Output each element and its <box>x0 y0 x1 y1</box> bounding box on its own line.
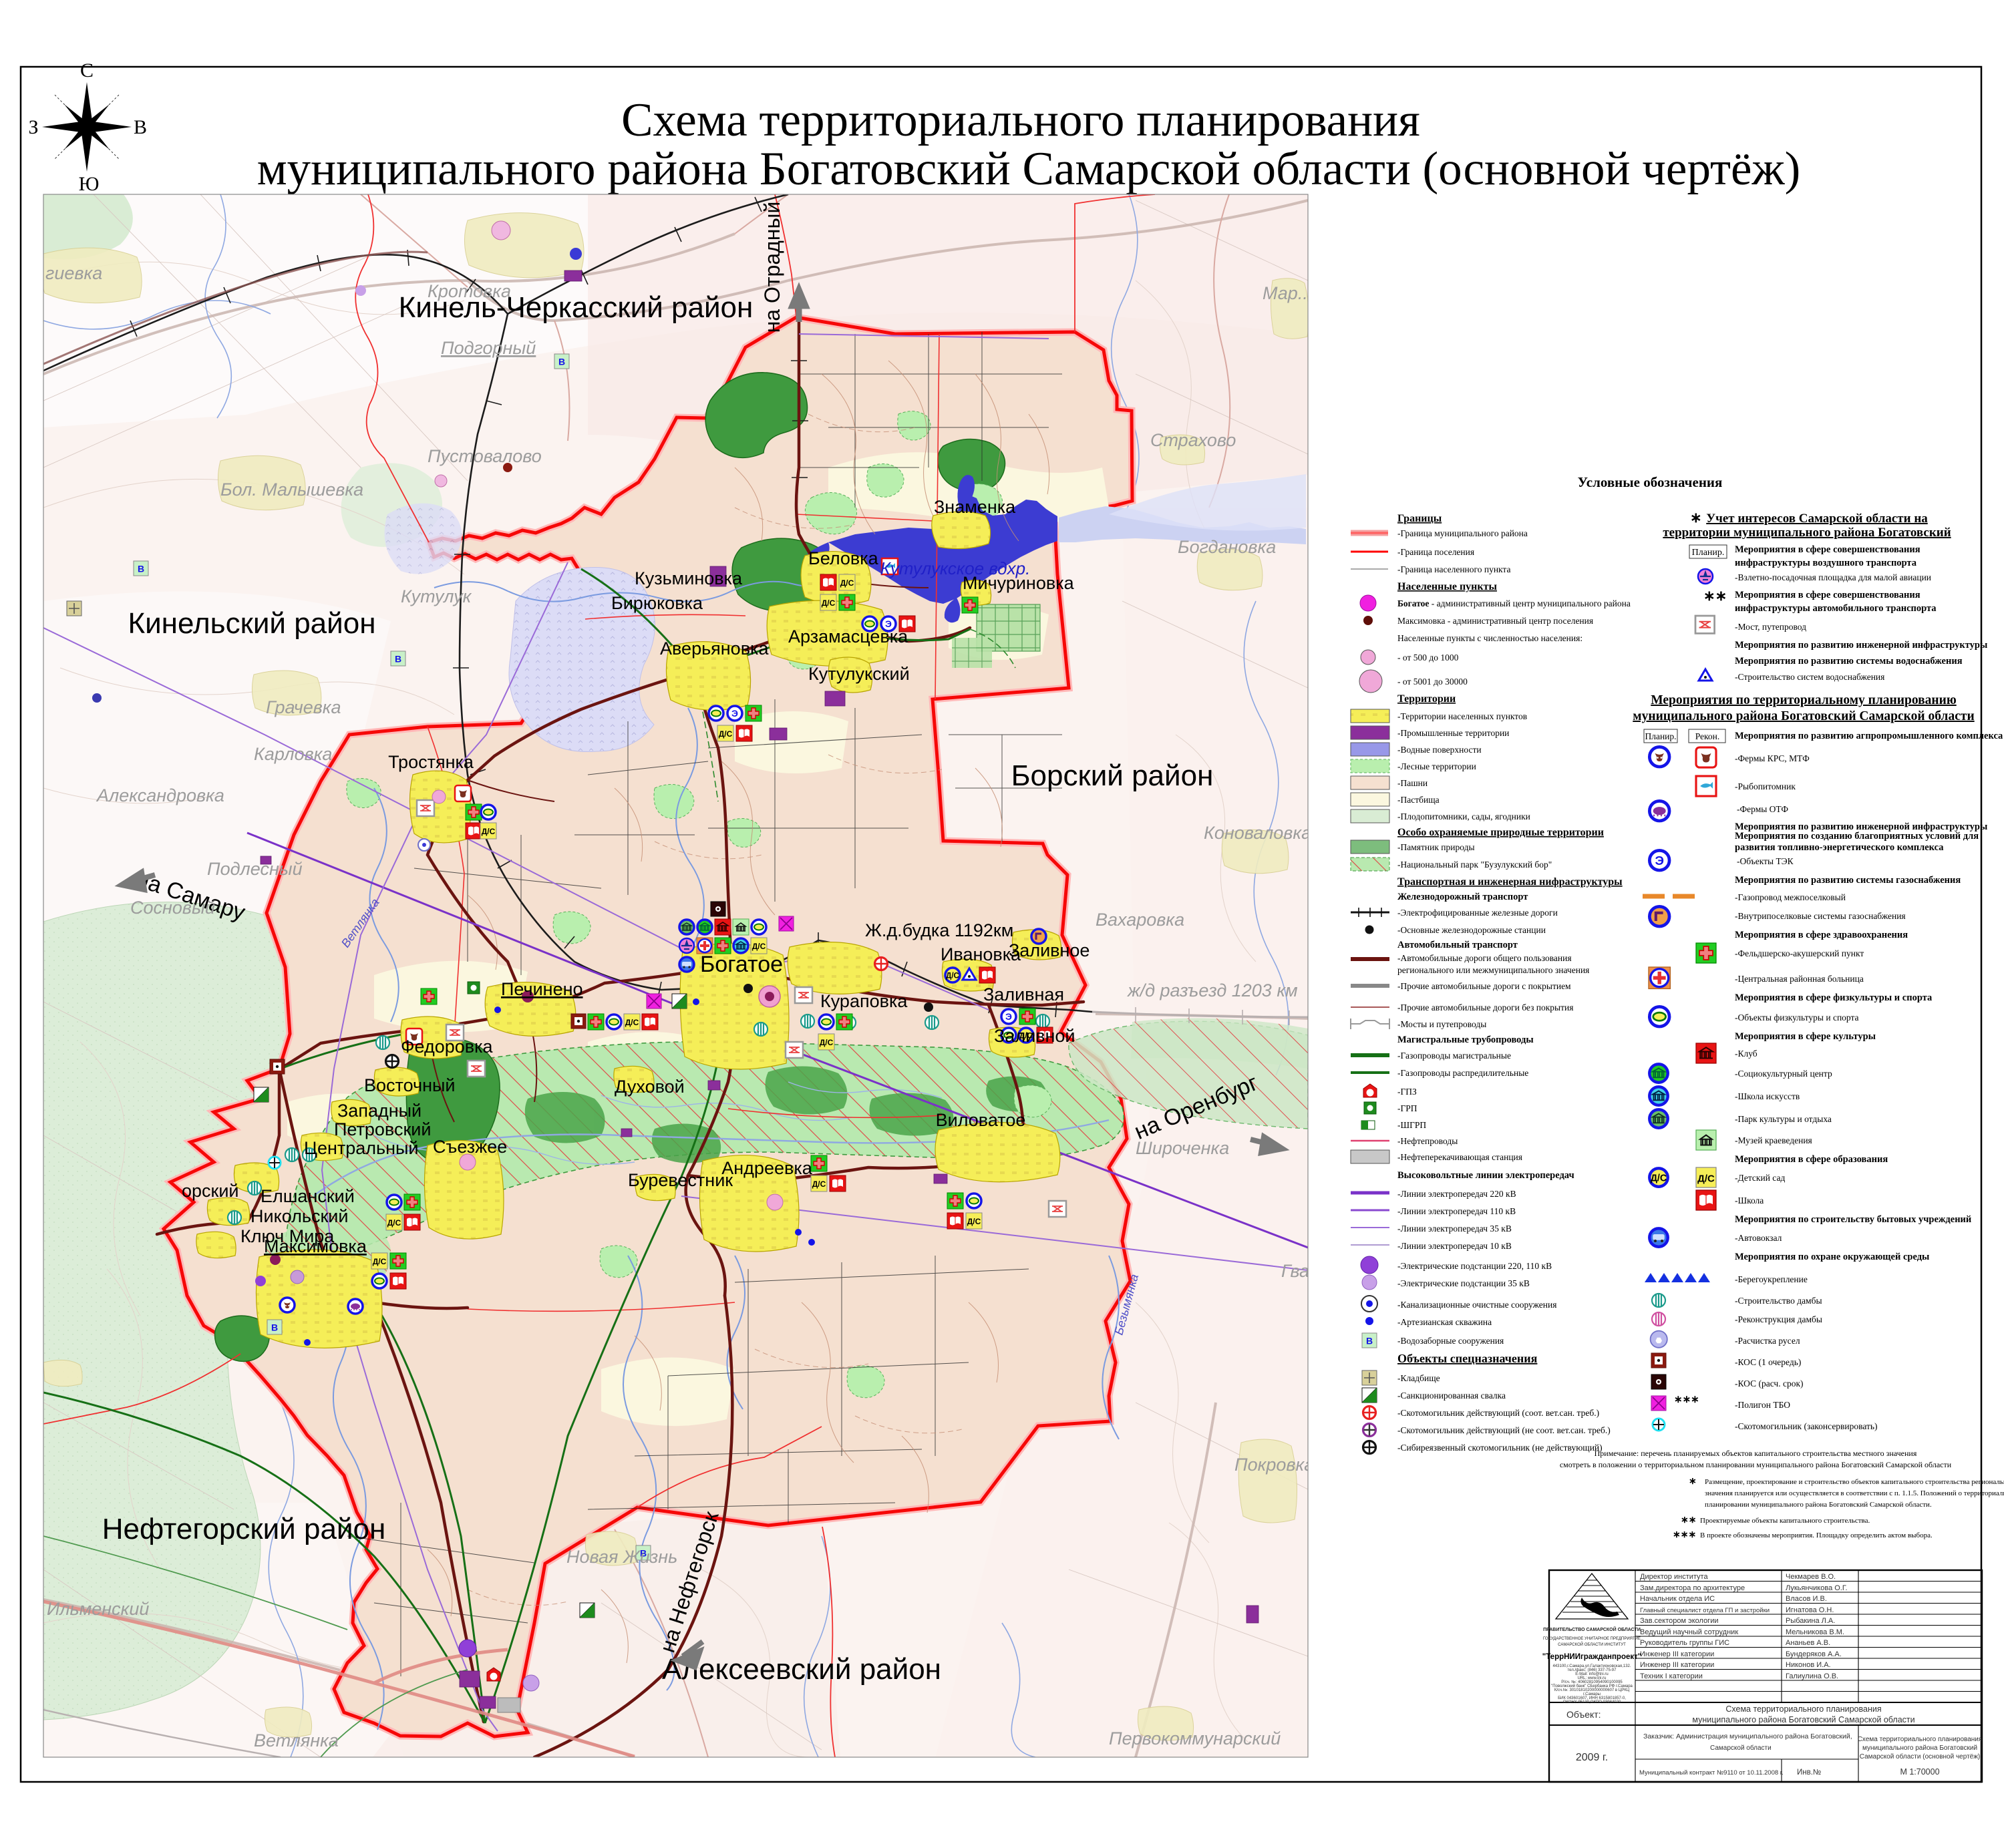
svg-text:Территории: Территории <box>1397 693 1456 705</box>
svg-text:-Нефтеперекачивающая станция: -Нефтеперекачивающая станция <box>1397 1152 1522 1162</box>
svg-text:Ведущий научный сотрудник: Ведущий научный сотрудник <box>1640 1628 1738 1636</box>
svg-text:З: З <box>28 116 38 138</box>
svg-text:Богдановка: Богдановка <box>1178 537 1276 557</box>
svg-text:Мероприятия по развитию инжене: Мероприятия по развитию инженерной инфра… <box>1735 640 1987 651</box>
svg-text:-Сибиреязвенный скотомогильник: -Сибиреязвенный скотомогильник (не дейст… <box>1397 1443 1603 1453</box>
svg-text:-Пастбища: -Пастбища <box>1397 795 1440 805</box>
svg-text:САМАРСКОЙ ОБЛАСТИ ИНСТИТУТ: САМАРСКОЙ ОБЛАСТИ ИНСТИТУТ <box>1558 1642 1626 1647</box>
svg-text:Мероприятия в сфере культуры: Мероприятия в сфере культуры <box>1735 1031 1876 1042</box>
svg-text:Мероприятия в сфере здравоохра: Мероприятия в сфере здравоохранения <box>1735 930 1908 940</box>
svg-text:ж/д разъезд 1203 км: ж/д разъезд 1203 км <box>1127 980 1298 1000</box>
svg-text:Ю: Ю <box>79 173 100 195</box>
svg-text:Планир.: Планир. <box>1692 548 1725 558</box>
svg-text:Елшанский: Елшанский <box>261 1186 355 1206</box>
svg-text:ОКОНХ 95130,ОКПО 03984020: ОКОНХ 95130,ОКПО 03984020 <box>1563 1700 1621 1704</box>
svg-text:значения планируется или осуще: значения планируется или осуществляется … <box>1705 1489 2004 1497</box>
svg-text:-Нефтепроводы: -Нефтепроводы <box>1397 1136 1458 1146</box>
svg-text:-ГПЗ: -ГПЗ <box>1397 1087 1417 1097</box>
svg-text:Самарской области (основной че: Самарской области (основной чертёж) <box>1860 1752 1981 1761</box>
svg-text:Заказчик: Администрация муници: Заказчик: Администрация муниципального р… <box>1643 1732 1852 1740</box>
svg-text:Мероприятия по созданию благоп: Мероприятия по созданию благоприятных ус… <box>1735 831 1979 842</box>
svg-text:Бундеряков А.А.: Бундеряков А.А. <box>1786 1650 1842 1658</box>
svg-text:Руководитель группы ГИС: Руководитель группы ГИС <box>1640 1639 1729 1647</box>
svg-text:Арзамасцевка: Арзамасцевка <box>788 626 908 646</box>
svg-text:∗∗: ∗∗ <box>1703 588 1727 604</box>
svg-text:Подлесный: Подлесный <box>207 859 303 879</box>
svg-text:-Детский сад: -Детский сад <box>1735 1173 1785 1183</box>
svg-text:∗∗∗: ∗∗∗ <box>1673 1530 1696 1540</box>
svg-text:С: С <box>80 59 94 81</box>
svg-text:-Электрические подстанции 35 к: -Электрические подстанции 35 кВ <box>1397 1278 1530 1288</box>
svg-text:Инженер III категории: Инженер III категории <box>1640 1661 1714 1669</box>
svg-text:Примечание: перечень планируем: Примечание: перечень планируемых объекто… <box>1595 1449 1917 1458</box>
svg-text:Лукьянчикова О.Г.: Лукьянчикова О.Г. <box>1786 1584 1848 1592</box>
svg-text:-Газопровод межпоселковый: -Газопровод межпоселковый <box>1735 892 1846 902</box>
svg-text:-Строительство систем водоснаб: -Строительство систем водоснабжения <box>1735 672 1884 682</box>
svg-text:Мероприятия в сфере физкультур: Мероприятия в сфере физкультуры и спорта <box>1735 992 1933 1003</box>
svg-text:2009 г.: 2009 г. <box>1576 1752 1608 1763</box>
svg-text:Инв.№: Инв.№ <box>1797 1769 1821 1777</box>
svg-text:-Газопроводы магистральные: -Газопроводы магистральные <box>1397 1051 1511 1061</box>
svg-text:- от 5001 до 30000: - от 5001 до 30000 <box>1397 677 1468 687</box>
svg-text:-Реконструкция дамбы: -Реконструкция дамбы <box>1735 1314 1822 1324</box>
svg-text:Карловка: Карловка <box>254 744 332 764</box>
svg-text:Восточный: Восточный <box>364 1075 455 1095</box>
svg-text:-Рыбопитомник: -Рыбопитомник <box>1735 781 1796 791</box>
svg-text:Проектируемые объекты капиталь: Проектируемые объекты капитального строи… <box>1700 1517 1870 1525</box>
svg-text:-Полигон ТБО: -Полигон ТБО <box>1735 1400 1790 1410</box>
svg-text:инфраструктуры автомобильного: инфраструктуры автомобильного транспорта <box>1735 603 1937 614</box>
svg-text:-КОС (расч. срок): -КОС (расч. срок) <box>1735 1378 1804 1389</box>
svg-text:Объекты спецназначения: Объекты спецназначения <box>1397 1352 1538 1365</box>
svg-text:Игнатова О.Н.: Игнатова О.Н. <box>1786 1606 1834 1614</box>
svg-text:-Автомобильные дороги общего п: -Автомобильные дороги общего пользования <box>1397 953 1572 963</box>
svg-text:смотреть в положении о террито: смотреть в положении о территориальном п… <box>1560 1460 1952 1469</box>
svg-text:-Берегоукрепление: -Берегоукрепление <box>1735 1274 1808 1284</box>
svg-text:Бирюковка: Бирюковка <box>611 593 703 613</box>
svg-text:Ж.д.будка 1192км: Ж.д.будка 1192км <box>865 920 1013 940</box>
svg-text:Ильменский: Ильменский <box>47 1599 149 1619</box>
svg-text:Съезжее: Съезжее <box>433 1137 507 1157</box>
svg-text:Знаменка: Знаменка <box>934 497 1016 517</box>
svg-text:Железнодорожный транспорт: Железнодорожный транспорт <box>1397 892 1528 902</box>
svg-text:-Объекты физкультуры и спорта: -Объекты физкультуры и спорта <box>1735 1012 1859 1023</box>
svg-text:Кузьминовка: Кузьминовка <box>635 568 743 588</box>
svg-text:Кинельский район: Кинельский район <box>128 607 375 640</box>
svg-text:Зав.сектором экологии: Зав.сектором экологии <box>1640 1617 1719 1625</box>
svg-text:-Санкционированная свалка: -Санкционированная свалка <box>1397 1391 1506 1401</box>
svg-text:-Музей краеведения: -Музей краеведения <box>1735 1135 1812 1145</box>
svg-text:Новая Жизнь: Новая Жизнь <box>566 1547 677 1567</box>
svg-text:-ШГРП: -ШГРП <box>1397 1120 1426 1130</box>
svg-text:Мероприятия по развитию систем: Мероприятия по развитию системы газоснаб… <box>1735 875 1961 886</box>
svg-text:В проекте обозначены мероприят: В проекте обозначены мероприятия. Площад… <box>1700 1531 1933 1539</box>
svg-text:∗: ∗ <box>1690 510 1702 526</box>
svg-text:Виловатое: Виловатое <box>936 1110 1026 1130</box>
svg-text:-Электрофицированные железные: -Электрофицированные железные дороги <box>1397 908 1558 918</box>
svg-text:Транспортная и инженерная нифр: Транспортная и инженерная нифраструктуры <box>1397 876 1623 888</box>
svg-text:Богатое - административный: Богатое - административный центр муницип… <box>1397 598 1631 608</box>
svg-text:Населенные пункты с численност: Населенные пункты с численностью населен… <box>1397 633 1582 643</box>
svg-text:Рекон.: Рекон. <box>1695 731 1720 741</box>
svg-text:муниципального района Богатовс: муниципального района Богатовский Самарс… <box>257 143 1801 195</box>
svg-text:"ТеррНИИгражданпроект": "ТеррНИИгражданпроект" <box>1542 1653 1641 1661</box>
svg-text:-Граница муниципального района: -Граница муниципального района <box>1397 528 1528 538</box>
svg-text:Борский район: Борский район <box>1011 759 1214 792</box>
svg-text:Максимовка - административн: Максимовка - административный центр посе… <box>1397 616 1593 626</box>
svg-text:Схема территориального планиро: Схема территориального планирования <box>621 94 1420 146</box>
svg-text:Вахаровка: Вахаровка <box>1096 910 1184 930</box>
svg-text:Бол. Малышевка: Бол. Малышевка <box>220 480 363 500</box>
svg-text:-Граница поселения: -Граница поселения <box>1397 547 1474 557</box>
svg-text:Мероприятия по развитию агпроп: Мероприятия по развитию агпропромышленно… <box>1735 731 2003 741</box>
svg-text:Населенные пункты: Населенные пункты <box>1397 581 1497 592</box>
svg-text:Чекмарев В.О.: Чекмарев В.О. <box>1786 1573 1836 1581</box>
svg-text:-Водные поверхности: -Водные поверхности <box>1397 745 1482 755</box>
svg-text:Нефтегорский район: Нефтегорский район <box>102 1513 386 1545</box>
svg-text:Печинено: Печинено <box>501 979 583 999</box>
svg-text:Условные обозначения: Условные обозначения <box>1578 474 1723 490</box>
svg-text:Первокоммунарский: Первокоммунарский <box>1109 1728 1281 1748</box>
svg-text:Инженер III категории: Инженер III категории <box>1640 1650 1714 1658</box>
svg-text:Федоровка: Федоровка <box>401 1037 494 1057</box>
svg-text:-Автовокзал: -Автовокзал <box>1735 1233 1782 1243</box>
svg-text:-Граница населенного пункта: -Граница населенного пункта <box>1397 564 1511 574</box>
svg-text:-Памятник природы: -Памятник природы <box>1397 842 1475 852</box>
svg-text:-Электрические подстанции 220: -Электрические подстанции 220, 110 кВ <box>1397 1261 1552 1271</box>
svg-text:на Отрадный: на Отрадный <box>760 202 784 333</box>
svg-text:-Линии электропередач 110 кВ: -Линии электропередач 110 кВ <box>1397 1206 1516 1216</box>
svg-text:-Линии электропередач 35 кВ: -Линии электропередач 35 кВ <box>1397 1224 1512 1234</box>
svg-text:Заливная: Заливная <box>983 984 1064 1004</box>
svg-text:Рыбакина Л.А.: Рыбакина Л.А. <box>1786 1617 1835 1625</box>
svg-text:Андреевка: Андреевка <box>721 1158 812 1178</box>
svg-text:-Парк культуры и отдыха: -Парк культуры и отдыха <box>1735 1114 1832 1124</box>
svg-text:-Артезианская скважина: -Артезианская скважина <box>1397 1317 1492 1327</box>
svg-text:Мельникова В.М.: Мельникова В.М. <box>1786 1628 1844 1636</box>
svg-text:В: В <box>134 116 147 138</box>
svg-text:Ветлянка: Ветлянка <box>254 1730 339 1750</box>
svg-text:муниципального района Богатовс: муниципального района Богатовский Самарс… <box>1692 1715 1914 1724</box>
svg-text:К/сч.№: 30101810200000000607 в: К/сч.№: 30101810200000000607 в ЦРКЦ <box>1554 1688 1630 1692</box>
svg-text:"Поволжский банк" СБербанка РФ: "Поволжский банк" СБербанка РФ г.Самара <box>1551 1684 1633 1688</box>
svg-text:Грачевка: Грачевка <box>266 697 341 717</box>
svg-text:ГОСУДАРСТВЕННОЕ УНИТАРНОЕ ПРЕД: ГОСУДАРСТВЕННОЕ УНИТАРНОЕ ПРЕДПРИЯТИЕ <box>1543 1637 1641 1641</box>
svg-text:-Скотомогильник (законсервиров: -Скотомогильник (законсервировать) <box>1735 1421 1878 1431</box>
svg-text:-Скотомогильник действующий (н: -Скотомогильник действующий (не соот. ве… <box>1397 1425 1611 1435</box>
svg-text:Мероприятия по развитию систем: Мероприятия по развитию системы водоснаб… <box>1735 656 1963 667</box>
svg-text:-Объекты ТЭК: -Объекты ТЭК <box>1737 856 1794 866</box>
svg-text:Буревестник: Буревестник <box>628 1170 733 1190</box>
svg-text:∗: ∗ <box>1689 1477 1697 1487</box>
svg-text:-Линии электропередач 10 кВ: -Линии электропередач 10 кВ <box>1397 1241 1512 1251</box>
svg-text:Западный: Западный <box>337 1101 422 1121</box>
svg-text:-Школа искусств: -Школа искусств <box>1735 1091 1800 1101</box>
svg-text:Галиулина О.В.: Галиулина О.В. <box>1786 1672 1838 1680</box>
svg-text:Коноваловка: Коноваловка <box>1204 823 1311 843</box>
svg-text:Мероприятия по охране окружающ: Мероприятия по охране окружающей среды <box>1735 1252 1929 1262</box>
svg-text:-Основные железнодорожные стан: -Основные железнодорожные станции <box>1397 925 1546 935</box>
svg-text:-Линии электропередач 220 кВ: -Линии электропередач 220 кВ <box>1397 1189 1516 1199</box>
svg-text:-КОС (1 очередь): -КОС (1 очередь) <box>1735 1357 1801 1367</box>
svg-text:Кураповка: Кураповка <box>820 991 908 1011</box>
svg-text:Границы: Границы <box>1397 513 1442 524</box>
svg-text:-Лесные территории: -Лесные территории <box>1397 761 1476 771</box>
svg-text:Мероприятия в сфере образовани: Мероприятия в сфере образования <box>1735 1154 1888 1165</box>
svg-text:Беловка: Беловка <box>808 548 879 568</box>
svg-text:∗∗: ∗∗ <box>1681 1515 1696 1525</box>
svg-text:-Прочие автомобильные дороги б: -Прочие автомобильные дороги без покрыти… <box>1397 1002 1573 1012</box>
svg-text:Александровка: Александровка <box>96 785 224 805</box>
svg-text:гиевка: гиевка <box>45 263 102 283</box>
svg-text:ПРАВИТЕЛЬСТВО САМАРСКОЙ ОБЛАСТ: ПРАВИТЕЛЬСТВО САМАРСКОЙ ОБЛАСТИ <box>1543 1626 1641 1632</box>
svg-text:Тростянка: Тростянка <box>388 752 474 772</box>
svg-text:Муниципальный контракт №9110 о: Муниципальный контракт №9110 от 10.11.20… <box>1639 1769 1784 1777</box>
svg-text:Автомобильный транспорт: Автомобильный транспорт <box>1397 940 1518 950</box>
svg-text:муниципального района Богатовс: муниципального района Богатовский <box>1862 1744 1977 1752</box>
svg-text:Главный специалист отдела ГП и: Главный специалист отдела ГП и застройки <box>1640 1607 1770 1614</box>
svg-text:-Клуб: -Клуб <box>1735 1049 1758 1059</box>
svg-text:Широченка: Широченка <box>1136 1138 1229 1158</box>
svg-text:Заливное: Заливное <box>1009 940 1090 960</box>
svg-text:-Прочие автомобильные дороги с: -Прочие автомобильные дороги с покрытием <box>1397 981 1571 991</box>
svg-text:муниципального района Богатовс: муниципального района Богатовский Самарс… <box>1633 709 1974 723</box>
svg-text:Кутулукское вдхр.: Кутулукское вдхр. <box>880 558 1031 578</box>
svg-text:Подгорный: Подгорный <box>441 338 536 358</box>
svg-text:-Социокультурный центр: -Социокультурный центр <box>1735 1069 1832 1079</box>
svg-text:-Внутрипоселковые системы газо: -Внутрипоселковые системы газоснабжения <box>1735 911 1906 921</box>
svg-text:Мероприятия по территориальном: Мероприятия по территориальному планиров… <box>1651 693 1957 707</box>
svg-text:Алексеевский район: Алексеевский район <box>662 1653 941 1686</box>
svg-text:Директор института: Директор института <box>1640 1573 1708 1581</box>
svg-text:-Пашни: -Пашни <box>1397 778 1428 788</box>
svg-text:регионального или межмуниципал: регионального или межмуниципального знач… <box>1397 965 1589 975</box>
svg-text:Ананьев А.В.: Ананьев А.В. <box>1786 1639 1830 1647</box>
svg-text:-Территории населенных пунктов: -Территории населенных пунктов <box>1397 711 1527 721</box>
svg-text:Мероприятия по строительству б: Мероприятия по строительству бытовых учр… <box>1735 1214 1971 1225</box>
svg-text:- от 500 до 1000: - от 500 до 1000 <box>1397 653 1459 663</box>
svg-text:планировании муниципального ра: планировании муниципального района Богат… <box>1705 1501 1932 1509</box>
svg-text:Мар...: Мар... <box>1263 283 1313 303</box>
svg-text:Никольский: Никольский <box>251 1206 348 1226</box>
svg-text:-Школа: -Школа <box>1735 1195 1764 1206</box>
svg-text:орский: орский <box>182 1181 239 1201</box>
svg-text:∗∗∗: ∗∗∗ <box>1674 1395 1699 1405</box>
svg-text:-Плодопитомники, сады, ягодник: -Плодопитомники, сады, ягодники <box>1397 811 1530 821</box>
svg-text:Кутулук: Кутулук <box>401 586 472 606</box>
svg-text:Планир.: Планир. <box>1645 731 1676 741</box>
svg-text:-Взлетно-посадочная площадка д: -Взлетно-посадочная площадка для малой а… <box>1735 572 1931 582</box>
svg-text:Никонов И.А.: Никонов И.А. <box>1786 1661 1831 1669</box>
svg-text:Объект:: Объект: <box>1566 1709 1601 1720</box>
svg-text:инфраструктуры воздушного тран: инфраструктуры воздушного транспорта <box>1735 558 1917 568</box>
svg-text:-Водозаборные сооружения: -Водозаборные сооружения <box>1397 1336 1504 1346</box>
svg-text:Мероприятия в сфере совершенст: Мероприятия в сфере совершенствования <box>1735 544 1920 555</box>
svg-text:-Фельдшерско-акушерский пункт: -Фельдшерско-акушерский пункт <box>1735 948 1864 958</box>
svg-text:-Мосты и путепроводы: -Мосты и путепроводы <box>1397 1019 1486 1029</box>
svg-text:Богатое: Богатое <box>700 952 783 977</box>
svg-text:Пустовалово: Пустовалово <box>428 446 542 466</box>
svg-text:Техник I категории: Техник I категории <box>1640 1672 1703 1680</box>
svg-text:-Фермы КРС, МТФ: -Фермы КРС, МТФ <box>1735 753 1810 763</box>
svg-text:Схема территориального планиро: Схема территориального планирования <box>1725 1704 1881 1714</box>
svg-text:-Строительство дамбы: -Строительство дамбы <box>1735 1296 1822 1306</box>
svg-text:Магистральные трубопроводы: Магистральные трубопроводы <box>1397 1035 1534 1045</box>
svg-text:-Фермы ОТФ: -Фермы ОТФ <box>1737 804 1788 814</box>
svg-text:-Кладбище: -Кладбище <box>1397 1373 1440 1383</box>
svg-text:Покровка: Покровка <box>1234 1455 1314 1475</box>
svg-text:-Газопроводы распредилительные: -Газопроводы распредилительные <box>1397 1068 1528 1078</box>
svg-text:Высоковольтные линии электропе: Высоковольтные линии электропередач <box>1397 1170 1574 1181</box>
svg-text:Кутулукский: Кутулукский <box>808 664 910 684</box>
svg-text:-Скотомогильник действующий (с: -Скотомогильник действующий (соот. вет.с… <box>1397 1408 1599 1418</box>
svg-text:Центральный: Центральный <box>304 1138 419 1158</box>
svg-text:-Промышленные территории: -Промышленные территории <box>1397 728 1509 738</box>
svg-text:Самарской области: Самарской области <box>1710 1744 1772 1752</box>
svg-text:Страхово: Страхово <box>1150 430 1236 450</box>
svg-text:Мероприятия в сфере совершенст: Мероприятия в сфере совершенствования <box>1735 590 1920 600</box>
svg-text:-ГРП: -ГРП <box>1397 1103 1417 1113</box>
svg-text:Р/сч. №: 40602810954090100095: Р/сч. №: 40602810954090100095 <box>1561 1680 1623 1684</box>
svg-text:-Расчистка русел: -Расчистка русел <box>1735 1336 1800 1346</box>
svg-text:Размещение, проектирование и с: Размещение, проектирование и строительст… <box>1705 1478 2004 1486</box>
svg-text:-Мост, путепровод: -Мост, путепровод <box>1735 622 1806 632</box>
svg-text:Аверьяновка: Аверьяновка <box>660 638 769 659</box>
svg-text:-Центральная районная больница: -Центральная районная больница <box>1735 974 1864 984</box>
svg-text:-Национальный парк "Бузулукски: -Национальный парк "Бузулукский бор" <box>1397 860 1552 870</box>
svg-text:развития топливно-энергетическ: развития топливно-энергетического компле… <box>1735 842 1944 853</box>
svg-text:территории муниципального райо: территории муниципального района Богатов… <box>1663 526 1951 540</box>
svg-text:Особо охраняемые природные тер: Особо охраняемые природные территории <box>1397 827 1604 838</box>
svg-text:Власов И.В.: Власов И.В. <box>1786 1595 1827 1603</box>
svg-text:-Канализационные очистные соор: -Канализационные очистные сооружения <box>1397 1300 1556 1310</box>
svg-text:Петровский: Петровский <box>334 1119 431 1139</box>
svg-text:М 1:70000: М 1:70000 <box>1900 1767 1939 1777</box>
svg-text:Заливной: Заливной <box>994 1026 1075 1046</box>
svg-text:Зам.директора по архитектуре: Зам.директора по архитектуре <box>1640 1584 1745 1592</box>
svg-text:Начальник отдела ИС: Начальник отдела ИС <box>1640 1595 1715 1603</box>
svg-text:Кротовка: Кротовка <box>428 281 511 301</box>
svg-text:Духовой: Духовой <box>615 1077 685 1097</box>
svg-text:Ключ Мира: Ключ Мира <box>240 1226 335 1246</box>
svg-text:Сосновый: Сосновый <box>130 898 215 918</box>
svg-text:Учет интересов Самарской облас: Учет интересов Самарской области на <box>1706 512 1928 526</box>
svg-text:Схема территориального планиро: Схема территориального планирования <box>1858 1736 1983 1743</box>
